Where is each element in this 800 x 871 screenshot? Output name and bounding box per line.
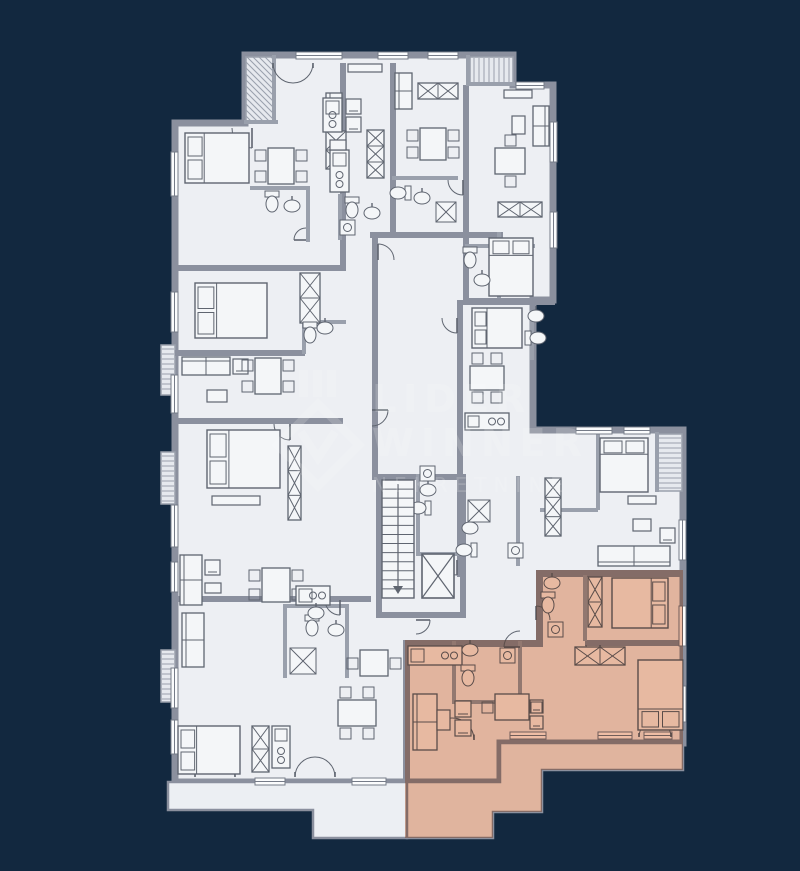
- toilet-bowl: [306, 620, 318, 636]
- toilet-symbol: [390, 186, 411, 200]
- wall: [463, 298, 555, 305]
- toilet-symbol: [303, 322, 317, 343]
- wardrobe-symbol: [418, 83, 458, 99]
- partition-wall: [466, 82, 515, 86]
- sink-basin: [474, 274, 490, 286]
- shelf-symbol: [212, 496, 260, 505]
- bed-frame: [195, 283, 267, 338]
- wardrobe-symbol: [300, 273, 320, 323]
- window: [171, 292, 178, 332]
- window: [171, 505, 178, 547]
- window: [428, 52, 458, 59]
- armchair-symbol: [346, 99, 361, 114]
- sink-basin: [364, 207, 380, 219]
- armchair-frame: [660, 528, 675, 543]
- bed-frame: [185, 133, 249, 183]
- sofa-symbol: [182, 357, 230, 375]
- kitchen-counter-symbol: [330, 150, 349, 192]
- washer-box: [340, 220, 355, 235]
- window: [171, 375, 178, 413]
- table-top: [420, 128, 446, 160]
- bed-frame: [178, 726, 240, 774]
- wall: [175, 418, 343, 424]
- sink-basin: [308, 607, 324, 619]
- window: [171, 152, 178, 196]
- shelf-rect: [212, 496, 260, 505]
- floor-plan: LIDER WINNER NEKRETNINE: [0, 0, 800, 871]
- wall: [376, 612, 466, 618]
- terrace: [168, 782, 407, 838]
- wall: [370, 232, 503, 238]
- shower-symbol: [290, 648, 316, 674]
- balcony-rect: [470, 57, 513, 84]
- armchair-symbol: [346, 117, 361, 132]
- sink-basin: [462, 522, 478, 534]
- bed-symbol: [185, 133, 249, 183]
- bed-frame: [207, 430, 280, 488]
- table-top: [268, 148, 294, 184]
- sofa-symbol: [182, 613, 204, 667]
- bed-frame: [600, 438, 648, 492]
- table-top: [338, 700, 376, 726]
- washer-box: [508, 543, 523, 558]
- table-top: [360, 650, 388, 676]
- bed-frame: [472, 308, 522, 348]
- sink-basin: [414, 192, 430, 204]
- shelf-symbol: [512, 116, 525, 134]
- table-top: [255, 358, 281, 394]
- watermark-logo-bar: [313, 370, 322, 397]
- toilet-symbol: [463, 247, 477, 268]
- toilet-bowl: [266, 196, 278, 212]
- bed-symbol: [600, 438, 648, 492]
- partition-wall: [244, 120, 278, 124]
- elevator-symbol: [422, 554, 454, 598]
- wardrobe-symbol: [367, 130, 384, 178]
- shelf-symbol: [628, 496, 656, 504]
- toilet-symbol: [265, 191, 279, 212]
- watermark-line-1: LIDER: [372, 377, 532, 421]
- shelf-symbol: [348, 64, 382, 72]
- floorplan-canvas: LIDER WINNER NEKRETNINE: [0, 0, 800, 871]
- shelf-symbol: [633, 519, 651, 531]
- bed-symbol: [489, 238, 533, 296]
- partition-wall: [655, 432, 659, 492]
- armchair-frame: [233, 359, 248, 374]
- window: [171, 720, 178, 754]
- window: [624, 427, 650, 434]
- balcony: [161, 452, 175, 504]
- balcony: [246, 57, 274, 122]
- partition-wall: [466, 55, 470, 85]
- shelf-symbol: [330, 140, 346, 150]
- balcony: [657, 434, 682, 491]
- armchair-symbol: [660, 528, 675, 543]
- window: [550, 212, 557, 248]
- partition-wall: [306, 186, 310, 242]
- shelf-rect: [330, 140, 346, 150]
- washer-symbol: [508, 543, 523, 558]
- wall: [175, 265, 346, 271]
- bed-symbol: [178, 726, 240, 774]
- window: [516, 82, 544, 89]
- toilet-symbol: [345, 197, 359, 218]
- watermark-line-2: WINNER: [372, 421, 589, 465]
- sofa-symbol: [598, 546, 670, 566]
- shelf-rect: [628, 496, 656, 504]
- shelf-symbol: [207, 390, 227, 402]
- toilet-bowl: [456, 544, 472, 556]
- shower-symbol: [436, 202, 456, 222]
- table-top: [262, 568, 290, 602]
- partition-wall: [283, 604, 287, 678]
- washer-symbol: [340, 220, 355, 235]
- balcony: [470, 57, 513, 84]
- sofa-symbol: [180, 555, 202, 605]
- window: [352, 778, 386, 785]
- toilet-bowl: [464, 252, 476, 268]
- kitchen-counter-symbol: [296, 586, 330, 605]
- window: [296, 52, 342, 59]
- armchair-symbol: [233, 359, 248, 374]
- watermark-logo-bar: [299, 370, 308, 397]
- window: [679, 520, 686, 560]
- partition-wall: [250, 186, 308, 190]
- sofa-symbol: [395, 73, 412, 109]
- toilet-bowl: [530, 332, 546, 344]
- watermark-logo-bar: [327, 370, 336, 397]
- bed-symbol: [207, 430, 280, 488]
- window: [171, 562, 178, 592]
- bed-symbol: [472, 308, 522, 348]
- watermark-line-3: NEKRETNINE: [372, 473, 570, 497]
- shelf-symbol: [205, 583, 221, 593]
- table-top: [495, 148, 525, 174]
- sink-basin: [284, 200, 300, 212]
- window: [255, 778, 285, 785]
- kitchen-counter-symbol: [323, 98, 342, 132]
- armchair-symbol: [205, 560, 220, 575]
- toilet-bowl: [304, 327, 316, 343]
- shelf-rect: [633, 519, 651, 531]
- toilet-bowl: [390, 187, 406, 199]
- shelf-rect: [348, 64, 382, 72]
- wall: [175, 350, 305, 356]
- bed-symbol: [195, 283, 267, 338]
- shelf-rect: [504, 90, 532, 98]
- sink-basin: [317, 322, 333, 334]
- sink-basin: [528, 310, 544, 322]
- toilet-bowl: [346, 202, 358, 218]
- window: [378, 52, 408, 59]
- shelf-rect: [207, 390, 227, 402]
- wardrobe-symbol: [498, 202, 542, 217]
- staircase-symbol: [382, 480, 414, 598]
- sofa-symbol: [533, 106, 549, 146]
- toilet-symbol: [456, 543, 477, 557]
- armchair-frame: [346, 117, 361, 132]
- wardrobe-symbol: [252, 726, 269, 772]
- kitchen-counter-symbol: [272, 726, 290, 768]
- window: [550, 122, 557, 162]
- armchair-frame: [346, 99, 361, 114]
- partition-wall: [392, 176, 458, 180]
- shelf-rect: [512, 116, 525, 134]
- sink-basin: [328, 624, 344, 636]
- armchair-frame: [205, 560, 220, 575]
- shower-symbol: [468, 500, 490, 522]
- toilet-symbol: [525, 331, 546, 345]
- shelf-symbol: [504, 90, 532, 98]
- bed-frame: [489, 238, 533, 296]
- window: [171, 668, 178, 708]
- shelf-rect: [205, 583, 221, 593]
